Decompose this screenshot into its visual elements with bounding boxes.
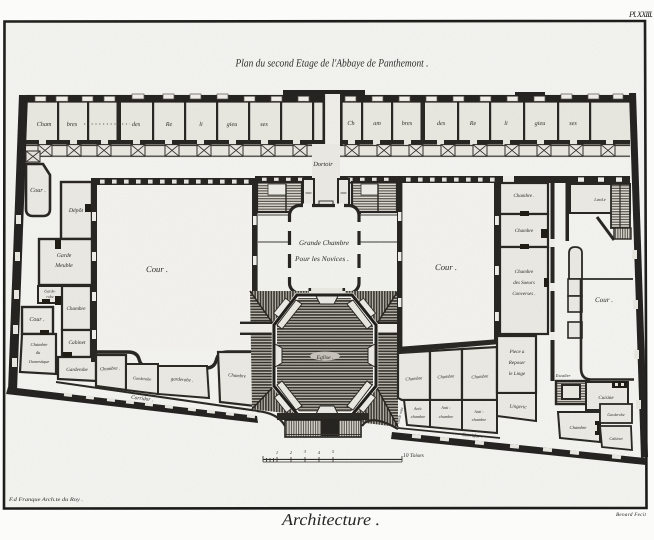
svg-text:Pl. XXIII.: Pl. XXIII. — [628, 9, 653, 19]
svg-text:Benard Fecit: Benard Fecit — [616, 512, 647, 518]
svg-text:Architecture .: Architecture . — [281, 510, 380, 529]
